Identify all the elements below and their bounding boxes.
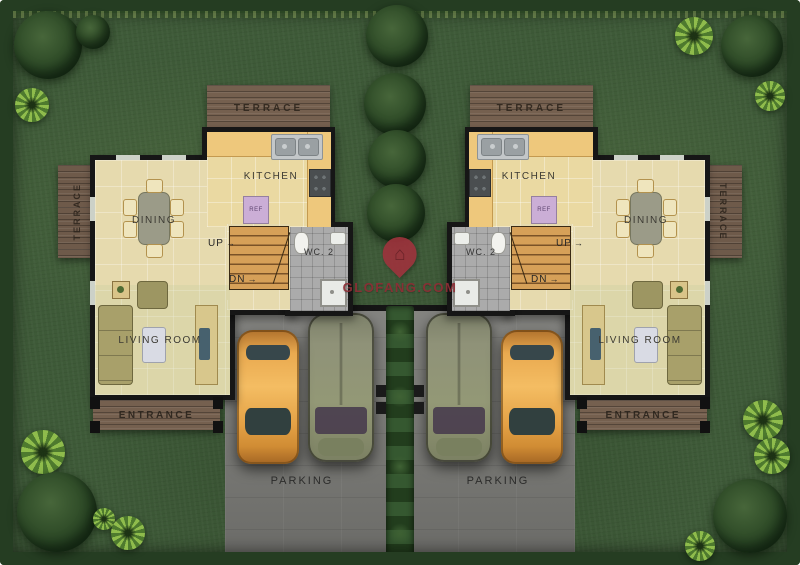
- tree: [14, 11, 82, 79]
- wc-label: WC. 2: [452, 247, 510, 257]
- chair: [637, 179, 654, 193]
- armchair: [137, 281, 168, 309]
- kitchen-label: KITCHEN: [215, 171, 327, 182]
- fence-post: [376, 402, 386, 414]
- car-roof: [434, 323, 484, 405]
- palm-tree: [743, 400, 783, 440]
- stairs-up-label: UP→: [208, 238, 244, 249]
- chair: [637, 244, 654, 258]
- fence-post: [376, 385, 386, 397]
- orange-sedan-car: [501, 330, 563, 464]
- kitchen-sink: [271, 134, 323, 160]
- parking-label: PARKING: [448, 475, 548, 487]
- refrigerator: REF: [243, 196, 269, 224]
- chair: [123, 199, 137, 216]
- parking-driveway: PARKING: [225, 305, 405, 565]
- window: [116, 155, 140, 160]
- up-arrow-icon: →: [226, 238, 236, 248]
- terrace-side-label: TERRACE: [72, 183, 82, 241]
- car-roof: [316, 323, 366, 405]
- stairs-up-label: UP→: [556, 238, 592, 249]
- palm-tree: [21, 430, 65, 474]
- parking-driveway: PARKING: [395, 305, 575, 565]
- window: [614, 155, 638, 160]
- tree: [367, 184, 425, 242]
- terrace-label: TERRACE: [497, 103, 566, 114]
- car-rear-window: [510, 345, 554, 360]
- location-pin-icon: ⌂: [376, 230, 424, 278]
- kitchen-sink: [477, 134, 529, 160]
- fence-post: [414, 402, 424, 414]
- car-hood: [318, 438, 364, 456]
- chair: [616, 199, 630, 216]
- entrance-label: ENTRANCE: [606, 410, 682, 421]
- house-unit-left: PARKING TERRACE TERRACE REF: [58, 85, 405, 565]
- gray-suv-car: [308, 313, 374, 462]
- up-arrow-icon: →: [574, 238, 584, 248]
- car-windshield: [509, 408, 555, 435]
- entrance-label: ENTRANCE: [119, 410, 195, 421]
- palm-tree: [755, 81, 785, 111]
- watermark-text: GLOFANG.COM: [343, 280, 458, 295]
- porch-post: [700, 421, 710, 433]
- tree: [17, 472, 97, 552]
- chair: [170, 199, 184, 216]
- car-rear-window: [246, 345, 290, 360]
- window: [660, 155, 684, 160]
- tree: [368, 130, 426, 188]
- watermark: ⌂ GLOFANG.COM: [343, 237, 458, 295]
- house-unit-right: PARKING TERRACE TERRACE REF: [395, 85, 742, 565]
- window: [162, 155, 186, 160]
- kitchen-label: KITCHEN: [473, 171, 585, 182]
- entrance-porch: ENTRANCE: [93, 400, 220, 430]
- tree: [721, 15, 783, 77]
- car-windshield: [245, 408, 291, 435]
- window: [90, 281, 95, 305]
- palm-tree: [754, 438, 790, 474]
- porch-post: [213, 421, 223, 433]
- palm-tree: [111, 516, 145, 550]
- palm-tree: [15, 88, 49, 122]
- gray-suv-car: [426, 313, 492, 462]
- window: [90, 197, 95, 221]
- terrace-top: TERRACE: [470, 85, 593, 131]
- entrance-porch: ENTRANCE: [580, 400, 707, 430]
- fence-post: [414, 385, 424, 397]
- stairs-down-label: DN→: [229, 274, 269, 285]
- porch-post: [90, 397, 100, 409]
- chair: [146, 244, 163, 258]
- car-windshield: [433, 407, 485, 434]
- orange-sedan-car: [237, 330, 299, 464]
- plant-stand: [112, 281, 130, 299]
- down-arrow-icon: →: [549, 274, 559, 284]
- window: [705, 197, 710, 221]
- dining-label: DINING: [104, 215, 204, 226]
- armchair: [632, 281, 663, 309]
- plant-stand: [670, 281, 688, 299]
- dining-label: DINING: [596, 215, 696, 226]
- porch-post: [577, 397, 587, 409]
- palm-tree: [675, 17, 713, 55]
- tree: [713, 479, 787, 553]
- window: [705, 281, 710, 305]
- living-room-label: LIVING ROOM: [102, 335, 218, 346]
- refrigerator: REF: [531, 196, 557, 224]
- wc-label: WC. 2: [290, 247, 348, 257]
- terrace-top: TERRACE: [207, 85, 330, 131]
- tree: [76, 15, 110, 49]
- porch-post: [213, 397, 223, 409]
- car-hood: [436, 438, 482, 456]
- chair: [663, 199, 677, 216]
- parking-label: PARKING: [252, 475, 352, 487]
- stairs-down-label: DN→: [531, 274, 571, 285]
- house-icon: ⌂: [394, 245, 405, 264]
- floor-plan-scene: PARKING TERRACE TERRACE REF: [0, 0, 800, 565]
- living-room-label: LIVING ROOM: [582, 335, 698, 346]
- porch-post: [90, 421, 100, 433]
- porch-post: [577, 421, 587, 433]
- chair: [146, 179, 163, 193]
- porch-post: [700, 397, 710, 409]
- terrace-label: TERRACE: [234, 103, 303, 114]
- down-arrow-icon: →: [247, 274, 257, 284]
- car-windshield: [315, 407, 367, 434]
- tree: [364, 73, 426, 135]
- palm-tree: [685, 531, 715, 561]
- center-hedge: [386, 306, 414, 565]
- terrace-side-label: TERRACE: [718, 183, 728, 241]
- tree: [366, 5, 428, 67]
